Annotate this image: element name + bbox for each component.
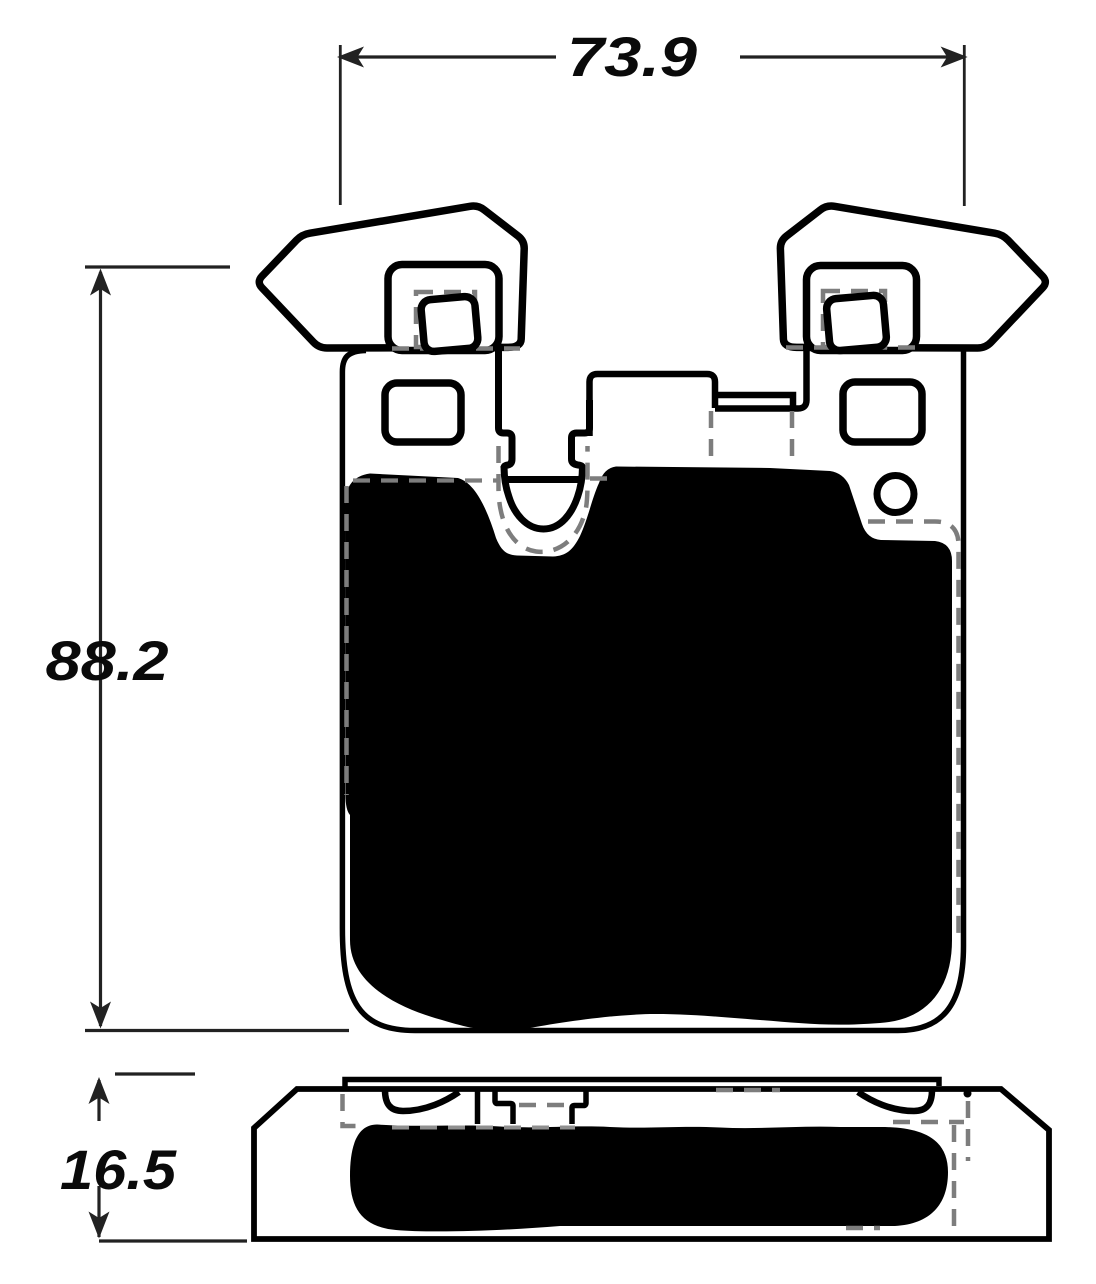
svg-text:16.5: 16.5 — [60, 1138, 177, 1201]
svg-text:73.9: 73.9 — [567, 25, 697, 88]
svg-text:88.2: 88.2 — [46, 629, 169, 692]
